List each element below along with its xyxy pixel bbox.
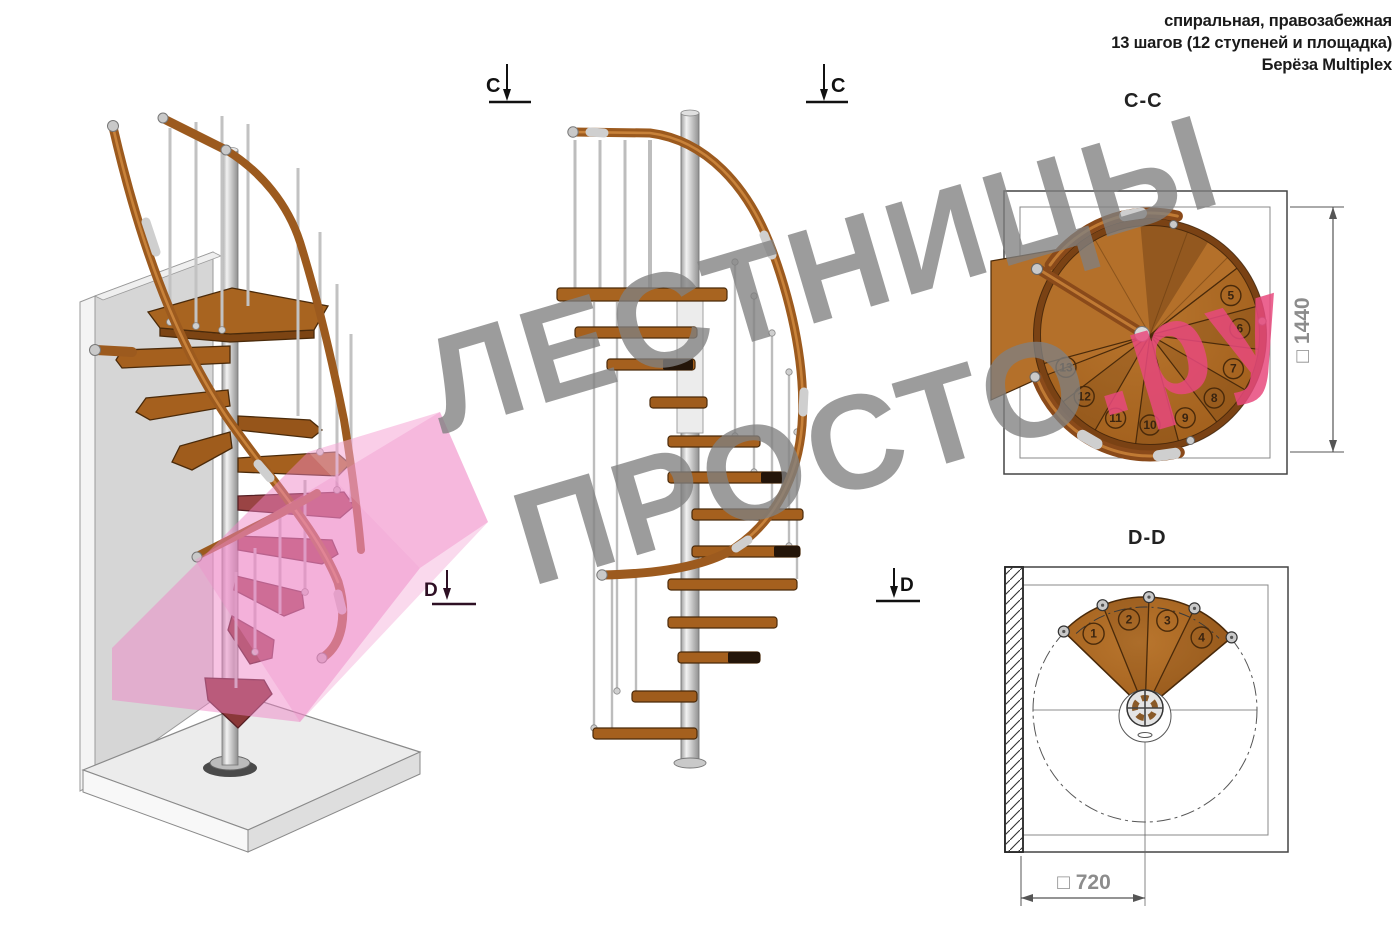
view-3d-staircase bbox=[80, 113, 488, 852]
marker-letter: C bbox=[831, 75, 845, 97]
svg-text:7: 7 bbox=[1230, 362, 1237, 376]
marker-letter: C bbox=[486, 75, 500, 97]
svg-text:9: 9 bbox=[1182, 411, 1189, 425]
dimension-dd-label: □ 720 bbox=[1057, 871, 1111, 894]
title-block: спиральная, правозабежная 13 шагов (12 с… bbox=[1111, 10, 1392, 76]
marker-letter: D bbox=[424, 580, 438, 601]
section-label-dd: D-D bbox=[1128, 527, 1167, 550]
svg-text:1: 1 bbox=[1090, 627, 1097, 641]
svg-text:4: 4 bbox=[1198, 631, 1205, 645]
svg-text:10: 10 bbox=[1143, 418, 1157, 432]
marker-letter: D bbox=[900, 575, 914, 596]
title-line-steps: 13 шагов (12 ступеней и площадка) bbox=[1111, 32, 1392, 54]
staircase-drawing: C C D D bbox=[0, 0, 1400, 940]
svg-text:3: 3 bbox=[1164, 614, 1171, 628]
svg-text:2: 2 bbox=[1126, 612, 1133, 626]
svg-text:13: 13 bbox=[1059, 360, 1073, 374]
dimension-cc-label: □ 1440 bbox=[1291, 297, 1314, 362]
title-line-material: Берёза Multiplex bbox=[1111, 54, 1392, 76]
svg-text:12: 12 bbox=[1078, 389, 1092, 403]
view-plan-cc: 5 6 7 8 9 10 11 12 13 □ 1440 bbox=[991, 191, 1344, 474]
wall-hatch bbox=[1005, 567, 1023, 852]
view-elevation bbox=[557, 110, 804, 768]
svg-text:11: 11 bbox=[1109, 411, 1122, 425]
pole-top-ball bbox=[1135, 327, 1150, 342]
section-marker-c-right: C bbox=[806, 64, 848, 102]
title-line-type: спиральная, правозабежная bbox=[1111, 10, 1392, 32]
svg-text:6: 6 bbox=[1236, 322, 1243, 336]
center-pole-plan bbox=[1119, 690, 1171, 742]
svg-text:5: 5 bbox=[1228, 289, 1235, 303]
svg-text:8: 8 bbox=[1211, 391, 1218, 405]
section-marker-d-right: D bbox=[876, 568, 920, 601]
drawing-page: C C D D bbox=[0, 0, 1400, 940]
section-label-cc: C-C bbox=[1124, 90, 1163, 113]
section-marker-c-left: C bbox=[486, 64, 531, 102]
view-plan-dd: 1 2 3 4 □ bbox=[1005, 567, 1288, 906]
